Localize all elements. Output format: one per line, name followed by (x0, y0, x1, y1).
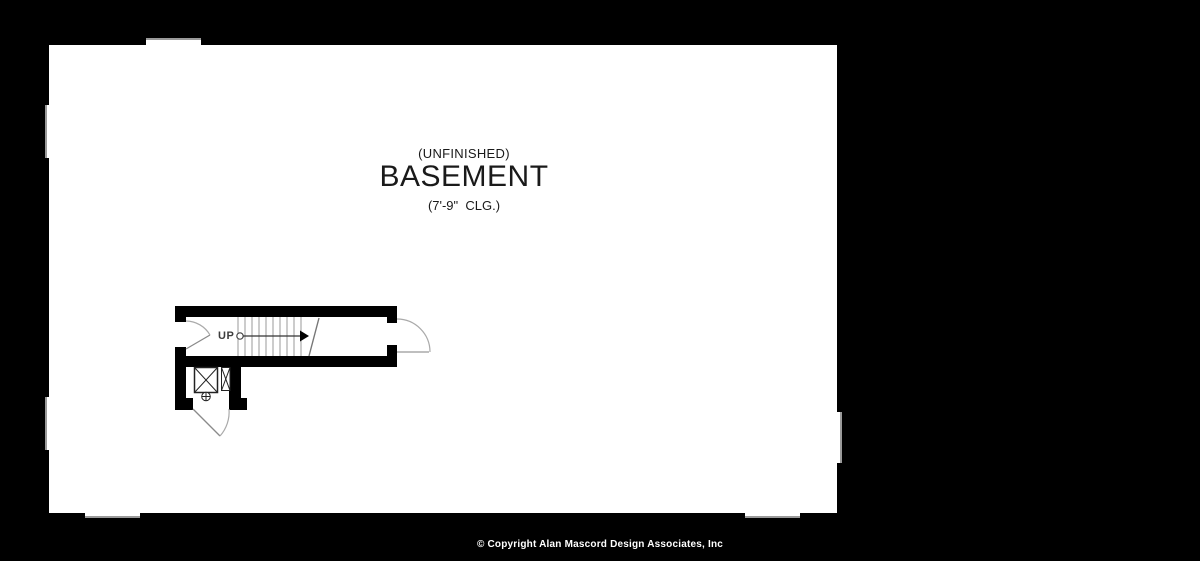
stair-assembly: UP (169, 299, 459, 449)
furnace-unit (222, 368, 231, 391)
window-notch-right (834, 412, 842, 463)
door-swing-stair-left (186, 321, 210, 349)
window-notch-bottom-left (85, 510, 140, 518)
window-notch-top (146, 38, 201, 48)
window-notch-left-upper (45, 105, 52, 158)
water-heater (195, 368, 218, 401)
floor-plan-sheet: (UNFINISHED) BASEMENT (7'-9" CLG.) (49, 45, 837, 513)
room-status-label: (UNFINISHED) (379, 147, 548, 161)
copyright-line: © Copyright Alan Mascord Design Associat… (0, 539, 1200, 551)
window-notch-left-lower (45, 397, 52, 450)
stair-break-line (309, 318, 319, 356)
door-swing-utility (193, 409, 229, 436)
room-label: (UNFINISHED) BASEMENT (7'-9" CLG.) (379, 147, 548, 213)
room-ceiling-label: (7'-9" CLG.) (379, 199, 548, 213)
up-label: UP (218, 330, 234, 342)
window-notch-bottom-right (745, 510, 800, 518)
page-background: (UNFINISHED) BASEMENT (7'-9" CLG.) (0, 0, 1200, 561)
door-swing-basement-right (397, 319, 430, 352)
room-name-label: BASEMENT (379, 162, 548, 192)
